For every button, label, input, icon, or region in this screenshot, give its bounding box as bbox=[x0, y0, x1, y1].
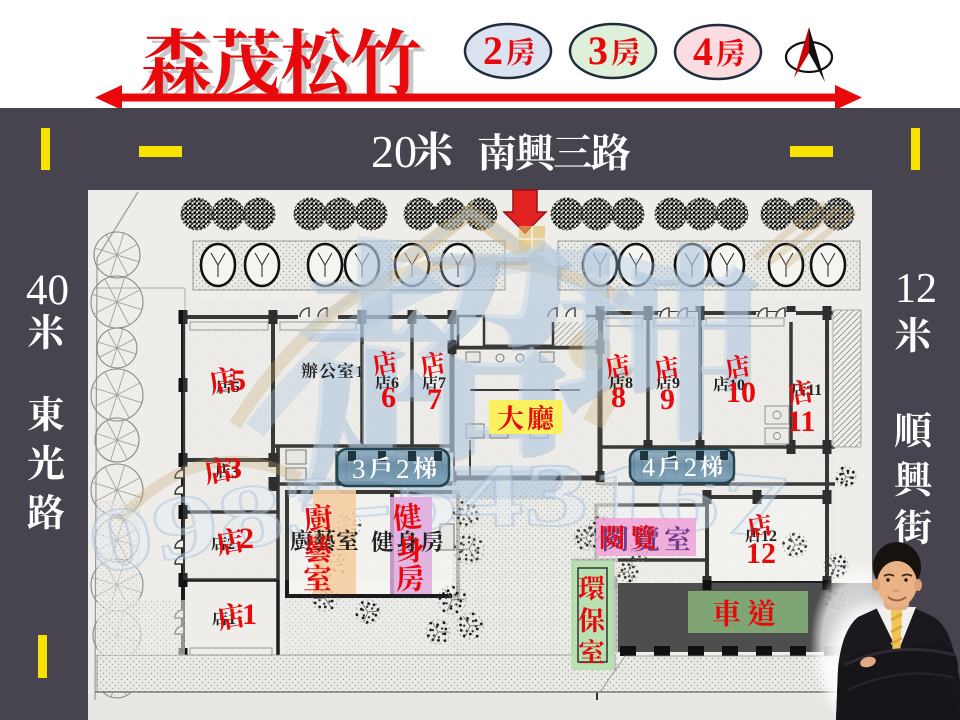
svg-text:2: 2 bbox=[483, 28, 503, 73]
svg-text:6: 6 bbox=[381, 381, 396, 414]
svg-text:40: 40 bbox=[26, 267, 69, 314]
svg-text:7: 7 bbox=[427, 383, 442, 416]
svg-text:2: 2 bbox=[684, 453, 697, 482]
svg-text:4: 4 bbox=[693, 29, 713, 74]
svg-text:5: 5 bbox=[231, 364, 246, 397]
svg-text:1: 1 bbox=[355, 362, 364, 381]
svg-text:11: 11 bbox=[787, 405, 815, 438]
svg-text:20: 20 bbox=[371, 126, 417, 177]
svg-text:9: 9 bbox=[660, 383, 675, 416]
svg-text:3: 3 bbox=[227, 452, 242, 485]
svg-text:10: 10 bbox=[726, 376, 756, 409]
svg-text:8: 8 bbox=[611, 381, 626, 414]
svg-text:1: 1 bbox=[242, 598, 257, 631]
svg-text:8: 8 bbox=[625, 375, 633, 392]
svg-text:2: 2 bbox=[239, 522, 254, 555]
svg-text:3: 3 bbox=[352, 454, 366, 484]
svg-text:12: 12 bbox=[746, 537, 776, 570]
svg-text:2: 2 bbox=[396, 454, 410, 484]
svg-text:3: 3 bbox=[588, 28, 608, 73]
svg-text:4: 4 bbox=[642, 453, 655, 482]
svg-text:12: 12 bbox=[895, 266, 937, 312]
